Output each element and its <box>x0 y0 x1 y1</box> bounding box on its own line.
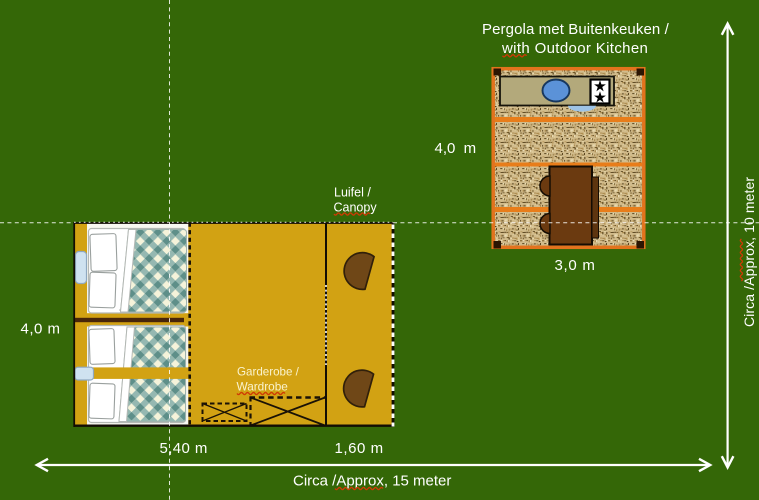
svg-text:Circa /Approx, 10 meter: Circa /Approx, 10 meter <box>741 177 757 327</box>
svg-text:3,0 m: 3,0 m <box>555 257 596 274</box>
svg-text:Garderobe /: Garderobe / <box>237 366 300 379</box>
svg-text:Pergola met Buitenkeuken /: Pergola met Buitenkeuken / <box>482 21 670 38</box>
svg-text:Canopy: Canopy <box>334 201 378 215</box>
svg-text:5,40 m: 5,40 m <box>160 440 208 457</box>
svg-text:4,0 m: 4,0 m <box>435 140 477 157</box>
svg-text:Wardrobe: Wardrobe <box>237 380 289 394</box>
svg-text:4,0 m: 4,0 m <box>21 321 61 338</box>
svg-text:1,60 m: 1,60 m <box>335 440 384 457</box>
svg-text:Luifel /: Luifel / <box>334 186 371 200</box>
svg-text:with Outdoor Kitchen: with Outdoor Kitchen <box>501 40 648 57</box>
svg-text:Circa /Approx, 15 meter: Circa /Approx, 15 meter <box>293 473 451 490</box>
